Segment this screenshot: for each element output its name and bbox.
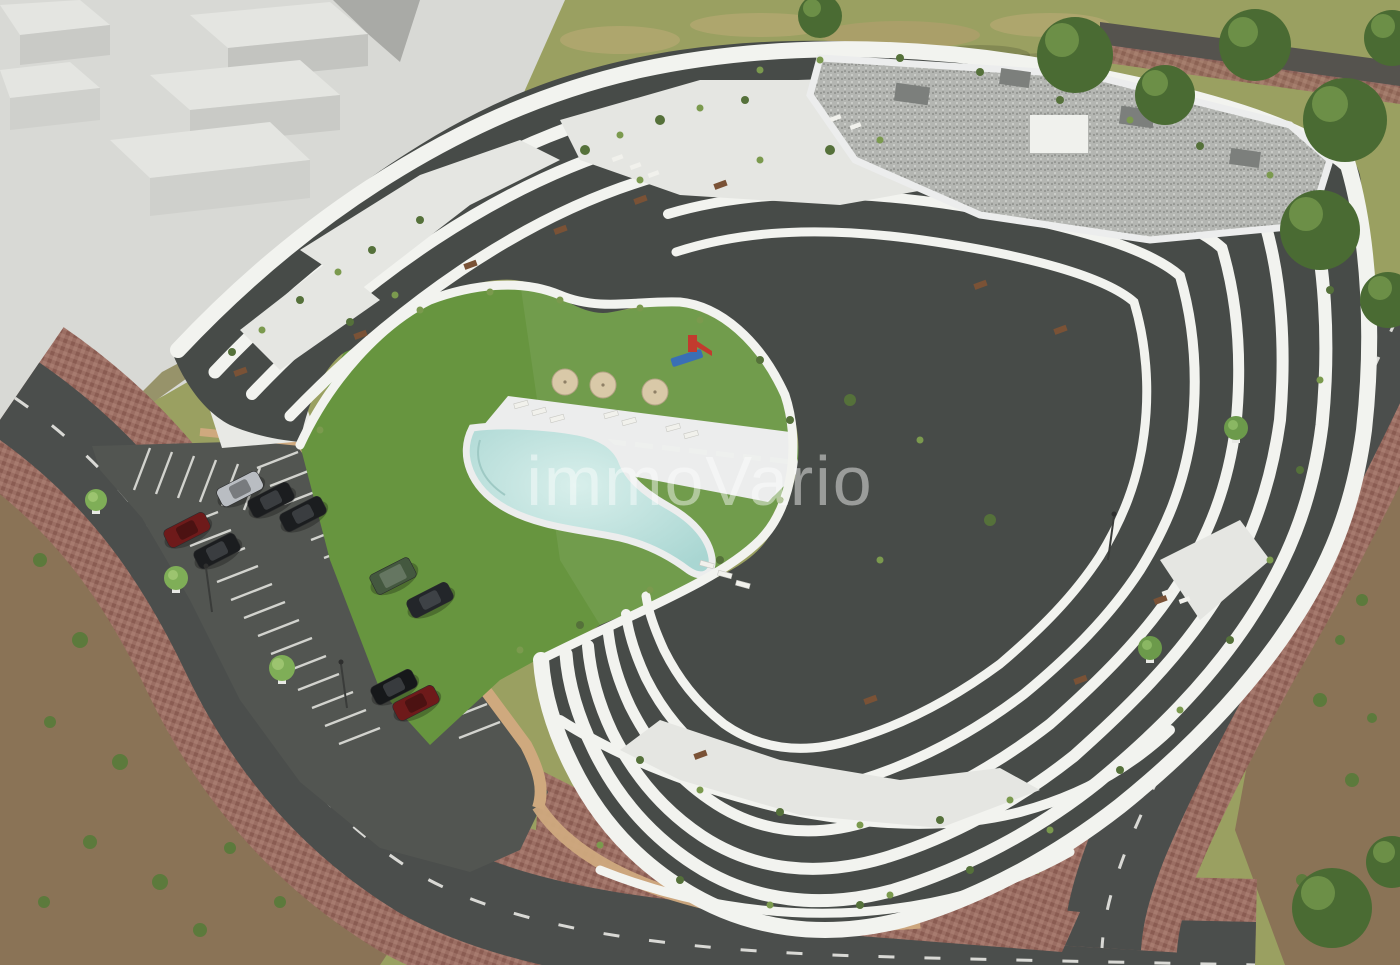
watermark-text: immoVario: [526, 442, 873, 520]
aerial-render: immoVario: [0, 0, 1400, 965]
roof-access: [1030, 115, 1088, 153]
render-scene: immoVario: [0, 0, 1400, 965]
